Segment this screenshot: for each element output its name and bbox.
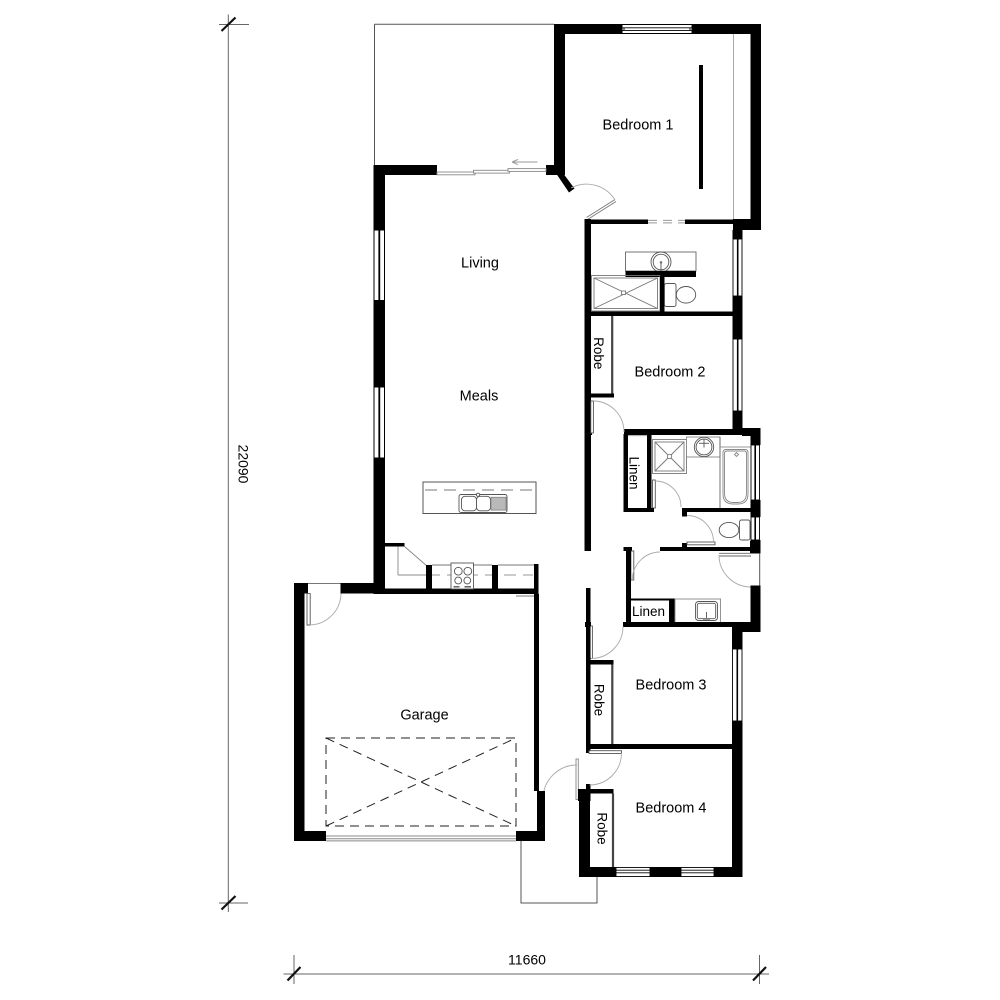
svg-text:11660: 11660 — [508, 952, 546, 968]
svg-text:22090: 22090 — [235, 445, 251, 484]
svg-text:Bedroom 1: Bedroom 1 — [603, 117, 674, 133]
svg-text:Robe: Robe — [594, 812, 609, 844]
svg-text:Meals: Meals — [460, 388, 499, 404]
svg-text:Robe: Robe — [591, 337, 606, 369]
svg-text:Bedroom 2: Bedroom 2 — [635, 365, 706, 381]
svg-text:Linen: Linen — [632, 604, 665, 619]
svg-text:Living: Living — [461, 255, 499, 271]
svg-text:Garage: Garage — [400, 707, 448, 723]
svg-text:Bedroom 4: Bedroom 4 — [636, 800, 707, 816]
svg-text:Bedroom 3: Bedroom 3 — [636, 677, 707, 693]
svg-text:Robe: Robe — [591, 684, 606, 716]
svg-text:Linen: Linen — [627, 456, 642, 489]
